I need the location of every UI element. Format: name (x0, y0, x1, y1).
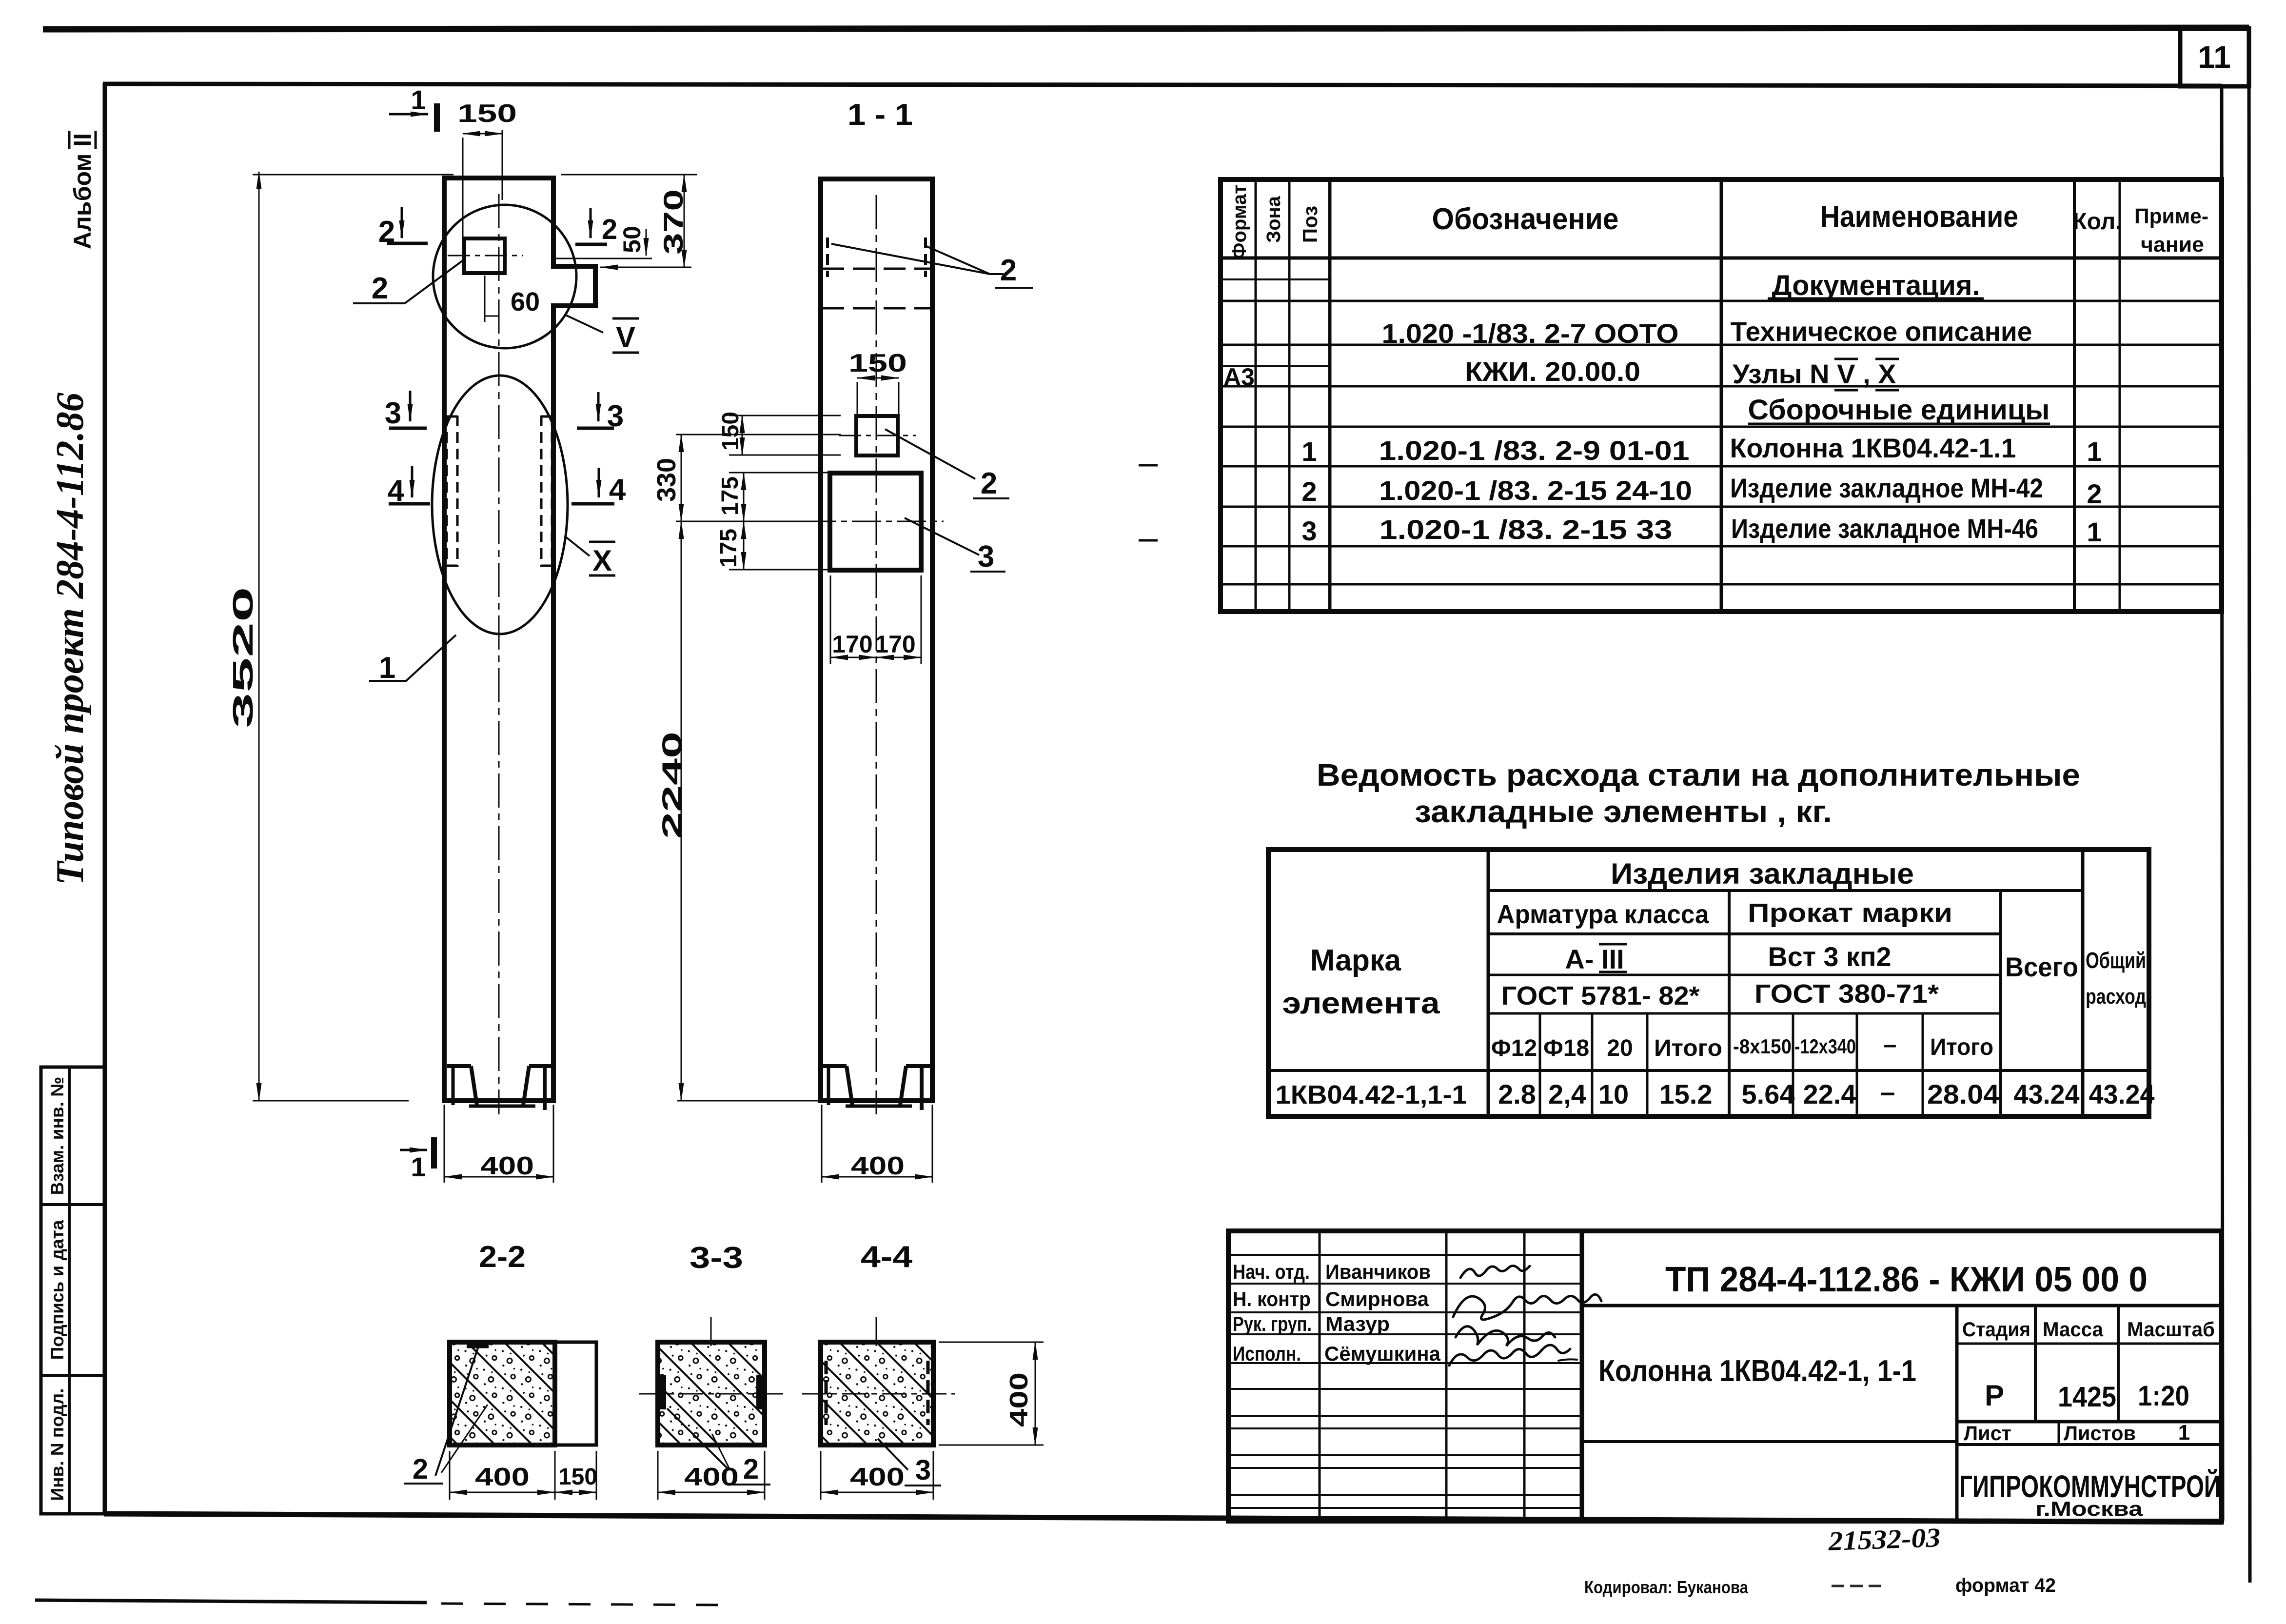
svg-text:элемента: элемента (1282, 987, 1440, 1020)
svg-text:Стадия: Стадия (1962, 1318, 2030, 1341)
svg-text:3: 3 (978, 540, 994, 574)
svg-text:Арматура класса: Арматура класса (1497, 900, 1710, 929)
svg-text:330: 330 (652, 458, 681, 502)
svg-text:Смирнова: Смирнова (1325, 1287, 1429, 1310)
svg-text:Колонна 1КВ04.42-1.1: Колонна 1КВ04.42-1.1 (1730, 433, 2016, 463)
svg-text:1: 1 (411, 84, 426, 115)
svg-text:Альбом II: Альбом II (69, 133, 96, 249)
svg-text:ГОСТ 380-71*: ГОСТ 380-71* (1754, 979, 1939, 1009)
svg-text:1425: 1425 (2058, 1381, 2116, 1413)
svg-text:Изделие закладное МН-42: Изделие закладное МН-42 (1730, 473, 2043, 503)
svg-text:170: 170 (832, 631, 872, 658)
svg-text:175: 175 (717, 476, 743, 515)
svg-text:Вст 3 кп2: Вст 3 кп2 (1768, 941, 1892, 972)
svg-text:400: 400 (684, 1463, 739, 1491)
svg-text:2: 2 (378, 215, 395, 249)
svg-text:Итого: Итого (1654, 1035, 1722, 1061)
svg-text:Приме-: Приме- (2134, 204, 2208, 228)
svg-text:Изделие закладное МН-46: Изделие закладное МН-46 (1731, 513, 2038, 544)
svg-text:370: 370 (658, 189, 689, 255)
svg-text:Поз: Поз (1299, 206, 1321, 243)
svg-text:Лист: Лист (1964, 1422, 2011, 1445)
svg-text:Ф18: Ф18 (1543, 1035, 1589, 1061)
svg-text:1: 1 (1301, 436, 1317, 467)
svg-text:2: 2 (602, 214, 617, 245)
svg-text:28.04: 28.04 (1927, 1079, 1999, 1109)
svg-text:Обозначение: Обозначение (1432, 202, 1619, 236)
svg-text:формат 42: формат 42 (1955, 1575, 2056, 1596)
svg-text:Марка: Марка (1310, 944, 1401, 977)
svg-text:Техническое описание: Техническое описание (1731, 316, 2032, 347)
svg-text:Взам. инв. №: Взам. инв. № (47, 1077, 67, 1195)
svg-text:5.64: 5.64 (1742, 1079, 1795, 1109)
svg-text:1:20: 1:20 (2138, 1380, 2189, 1412)
svg-text:400: 400 (850, 1463, 905, 1491)
svg-text:Колонна 1КВ04.42-1, 1-1: Колонна 1КВ04.42-1, 1-1 (1598, 1354, 1916, 1388)
svg-text:21532-03: 21532-03 (1827, 1523, 1941, 1557)
svg-text:Сёмушкина: Сёмушкина (1324, 1342, 1441, 1365)
svg-text:400: 400 (1005, 1372, 1033, 1427)
svg-text:Прокат марки: Прокат марки (1748, 898, 1952, 928)
svg-text:22.4: 22.4 (1803, 1079, 1856, 1109)
svg-text:1: 1 (411, 1151, 426, 1182)
svg-text:Итого: Итого (1930, 1034, 1993, 1060)
svg-text:1 - 1: 1 - 1 (847, 98, 913, 132)
svg-text:1.020-1 /83. 2-15 33: 1.020-1 /83. 2-15 33 (1379, 514, 1673, 545)
svg-text:Инв. N подл.: Инв. N подл. (47, 1388, 67, 1501)
svg-text:1: 1 (379, 651, 395, 685)
svg-text:11: 11 (2198, 40, 2231, 75)
svg-text:1: 1 (2087, 516, 2102, 547)
svg-text:V: V (616, 321, 635, 354)
svg-text:1.020-1 /83. 2-9 01-01: 1.020-1 /83. 2-9 01-01 (1379, 435, 1690, 466)
svg-text:Формат: Формат (1229, 184, 1250, 259)
svg-text:2: 2 (2087, 478, 2102, 509)
svg-text:15.2: 15.2 (1659, 1079, 1713, 1109)
svg-text:Кол.: Кол. (2072, 209, 2122, 235)
svg-text:Исполн.: Исполн. (1233, 1342, 1301, 1365)
svg-text:Ф12: Ф12 (1491, 1035, 1537, 1061)
svg-text:ТП 284-4-112.86 - КЖИ 05 00 0: ТП 284-4-112.86 - КЖИ 05 00 0 (1665, 1260, 2148, 1299)
svg-text:4: 4 (388, 474, 405, 508)
svg-text:1: 1 (2087, 436, 2102, 467)
svg-text:2: 2 (372, 272, 388, 305)
svg-text:170: 170 (875, 631, 915, 658)
svg-text:1.020-1 /83. 2-15 24-10: 1.020-1 /83. 2-15 24-10 (1379, 475, 1692, 506)
svg-text:Сборочные единицы: Сборочные единицы (1748, 394, 2050, 426)
svg-text:Узлы N V , X: Узлы N V , X (1733, 358, 1896, 389)
svg-text:Ведомость расхода стали на до: Ведомость расхода стали на дополнительны… (1317, 757, 2080, 792)
svg-text:3-3: 3-3 (690, 1241, 743, 1275)
svg-text:г.Москва: г.Москва (2035, 1497, 2143, 1520)
svg-text:-12х340: -12х340 (1794, 1035, 1856, 1058)
svg-text:закладные элементы , кг.: закладные элементы , кг. (1415, 794, 1832, 829)
svg-text:Мазур: Мазур (1325, 1312, 1390, 1335)
svg-text:Масса: Масса (2043, 1318, 2104, 1341)
svg-text:Общий: Общий (2086, 948, 2146, 973)
svg-text:Кодировал: Буканова: Кодировал: Буканова (1584, 1577, 1749, 1597)
svg-text:400: 400 (475, 1463, 530, 1491)
svg-text:Р: Р (1985, 1379, 2004, 1412)
svg-text:Листов: Листов (2064, 1422, 2136, 1445)
svg-text:400: 400 (480, 1152, 534, 1180)
svg-text:2,4: 2,4 (1548, 1079, 1586, 1109)
svg-text:150: 150 (848, 349, 907, 377)
svg-text:3: 3 (385, 396, 401, 430)
svg-text:2: 2 (1301, 476, 1317, 507)
svg-text:А- III: А- III (1565, 944, 1624, 974)
svg-text:Н. контр: Н. контр (1233, 1287, 1311, 1310)
svg-text:2.8: 2.8 (1498, 1079, 1536, 1109)
svg-text:150: 150 (558, 1464, 597, 1490)
svg-text:4: 4 (609, 473, 626, 507)
svg-text:20: 20 (1607, 1035, 1633, 1061)
svg-text:Наименование: Наименование (1820, 200, 2018, 234)
svg-text:Подпись и дата: Подпись и дата (47, 1220, 67, 1360)
svg-text:Нач. отд.: Нач. отд. (1233, 1260, 1310, 1283)
svg-text:А3: А3 (1223, 363, 1255, 391)
svg-text:Иванчиков: Иванчиков (1325, 1260, 1431, 1283)
svg-text:Масштаб: Масштаб (2127, 1318, 2215, 1341)
svg-text:Документация.: Документация. (1772, 270, 1980, 301)
svg-text:400: 400 (851, 1152, 905, 1180)
svg-text:1: 1 (2178, 1421, 2190, 1445)
svg-text:3: 3 (915, 1454, 931, 1486)
svg-text:Изделия закладные: Изделия закладные (1611, 857, 1914, 890)
svg-text:4-4: 4-4 (861, 1240, 913, 1274)
svg-text:ГОСТ 5781- 82*: ГОСТ 5781- 82* (1501, 981, 1700, 1010)
svg-text:чание: чание (2141, 233, 2204, 257)
svg-text:2: 2 (1000, 254, 1017, 287)
svg-text:–: – (1880, 1076, 1895, 1107)
svg-text:расход: расход (2086, 985, 2146, 1009)
svg-text:3: 3 (1301, 515, 1317, 546)
svg-text:43.24: 43.24 (2014, 1079, 2080, 1109)
svg-text:Типовой проект 284-4-112.86: Типовой проект 284-4-112.86 (49, 393, 92, 885)
svg-text:2: 2 (743, 1453, 759, 1485)
svg-text:2: 2 (981, 467, 997, 500)
svg-text:3520: 3520 (227, 587, 259, 728)
svg-text:Рук. груп.: Рук. груп. (1233, 1312, 1312, 1335)
svg-text:2: 2 (413, 1453, 428, 1485)
svg-text:Всего: Всего (2005, 951, 2078, 982)
svg-text:1.020 -1/83. 2-7 ООТО: 1.020 -1/83. 2-7 ООТО (1382, 318, 1679, 349)
svg-text:43.24: 43.24 (2089, 1079, 2155, 1109)
svg-text:X: X (592, 544, 612, 577)
svg-text:Зона: Зона (1263, 196, 1284, 243)
svg-text:60: 60 (511, 287, 540, 317)
svg-text:50: 50 (618, 226, 646, 253)
svg-text:175: 175 (716, 529, 742, 568)
svg-text:–: – (1884, 1032, 1897, 1058)
svg-text:КЖИ. 20.00.0: КЖИ. 20.00.0 (1465, 356, 1640, 387)
svg-text:10: 10 (1598, 1079, 1629, 1109)
svg-text:3: 3 (607, 399, 624, 433)
svg-text:150: 150 (457, 99, 517, 128)
svg-text:2-2: 2-2 (479, 1240, 526, 1274)
svg-text:2240: 2240 (656, 732, 687, 839)
svg-text:-8х150: -8х150 (1733, 1035, 1792, 1058)
svg-text:1КВ04.42-1,1-1: 1КВ04.42-1,1-1 (1276, 1080, 1467, 1109)
svg-text:150: 150 (718, 412, 744, 451)
